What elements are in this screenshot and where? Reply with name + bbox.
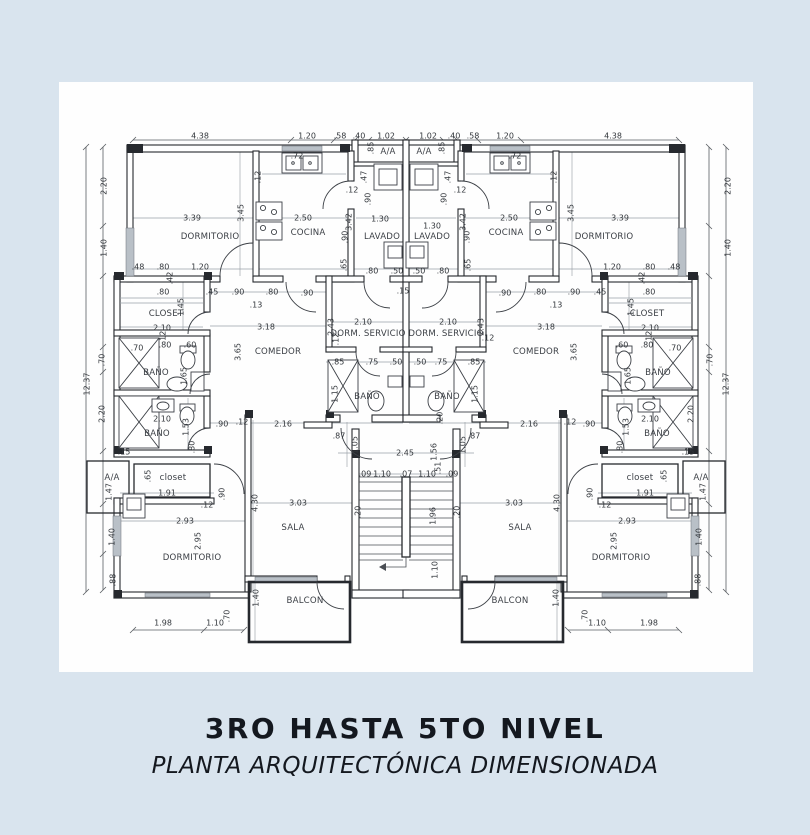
drawing-subtitle: PLANTA ARQUITECTÓNICA DIMENSIONADA	[0, 753, 810, 779]
page: { "page": { "background": "#d9e4ee", "pa…	[0, 0, 810, 835]
title-block: 3RO HASTA 5TO NIVEL PLANTA ARQUITECTÓNIC…	[0, 712, 810, 779]
apartment-unit-walls	[83, 137, 409, 642]
drawing-title: 3RO HASTA 5TO NIVEL	[0, 712, 810, 745]
floor-plan-drawing	[0, 0, 810, 835]
